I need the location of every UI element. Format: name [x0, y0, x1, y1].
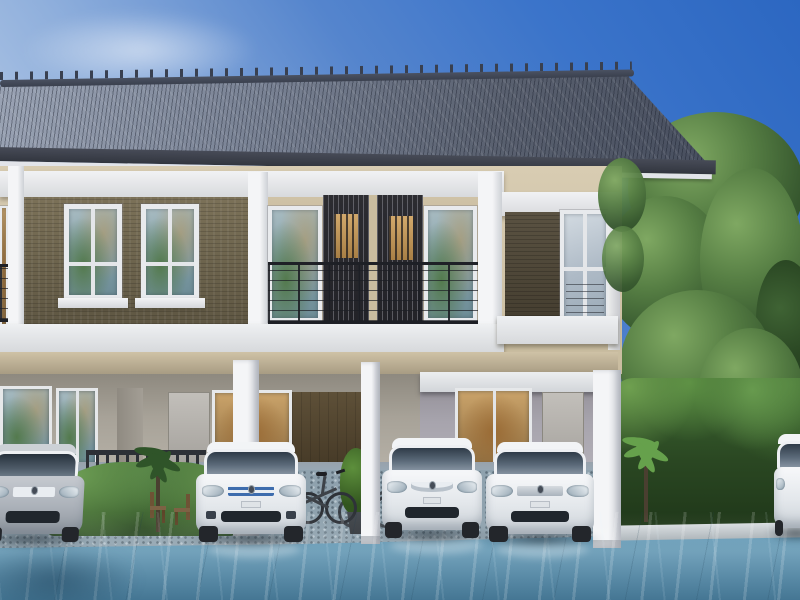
headlight — [279, 485, 301, 497]
interior-railing — [566, 278, 604, 313]
soffit-strip — [0, 352, 618, 374]
license-plate — [530, 501, 549, 508]
bumper-intake — [221, 511, 280, 523]
bicycle-seat — [316, 472, 327, 476]
car-wheel — [462, 522, 479, 538]
balcony-railing-edge — [0, 264, 8, 322]
white-sedan-blue-grille — [196, 442, 306, 540]
car-body — [774, 467, 800, 528]
architectural-rendering — [0, 0, 800, 600]
car-windshield — [204, 449, 299, 476]
window-sill — [135, 298, 205, 308]
car-windshield — [777, 441, 800, 469]
white-hatchback-chrome-grille — [382, 438, 482, 536]
car-body — [0, 476, 85, 535]
white-car-partial — [774, 434, 800, 534]
window-mullion — [146, 262, 194, 266]
lit-window-behind-louver — [389, 216, 413, 260]
silver-sedan — [0, 444, 87, 540]
window-mullion — [564, 267, 606, 271]
window-sill — [58, 298, 128, 308]
headlight — [491, 485, 513, 497]
fog-light — [286, 511, 296, 520]
window-mullion — [583, 214, 587, 330]
foreground-leaves — [602, 226, 644, 292]
car-wheel — [775, 520, 782, 536]
headlight — [457, 481, 477, 493]
lit-window-behind-louver — [334, 214, 358, 258]
bedroom-window — [141, 204, 199, 300]
car-wheel — [572, 526, 590, 542]
car-wheel — [199, 526, 218, 542]
foreground-leaves — [598, 158, 646, 232]
car-windshield — [494, 449, 587, 476]
balcony-railing — [268, 262, 478, 324]
headlight — [776, 478, 785, 490]
floor-band-end — [497, 316, 618, 344]
car-wheel — [489, 526, 507, 542]
car-wheel — [61, 527, 79, 542]
car-windshield — [0, 451, 79, 478]
palm-plant — [622, 420, 670, 522]
headlight — [59, 486, 80, 498]
license-plate — [423, 497, 441, 504]
bedroom-window — [64, 204, 122, 300]
car-wheel — [284, 526, 303, 542]
white-pilaster — [8, 166, 24, 332]
bumper-intake — [405, 507, 459, 519]
window-mullion — [69, 262, 117, 266]
floor-band — [0, 324, 504, 352]
headlight — [387, 481, 407, 493]
car-badge — [429, 481, 436, 490]
window-mullion — [168, 209, 172, 295]
car-windshield — [389, 445, 475, 472]
white-pilaster — [248, 172, 268, 340]
headlight — [567, 485, 589, 497]
license-plate — [241, 501, 261, 508]
bicycle-handlebar — [336, 469, 345, 475]
white-minivan — [486, 442, 594, 540]
brick-accent-panel-end — [505, 212, 562, 320]
car-wheel — [385, 522, 402, 538]
headlight — [202, 485, 224, 497]
window-mullion — [91, 209, 95, 295]
fog-light — [206, 511, 216, 520]
bumper-intake — [5, 511, 60, 523]
bumper-intake — [511, 511, 569, 523]
